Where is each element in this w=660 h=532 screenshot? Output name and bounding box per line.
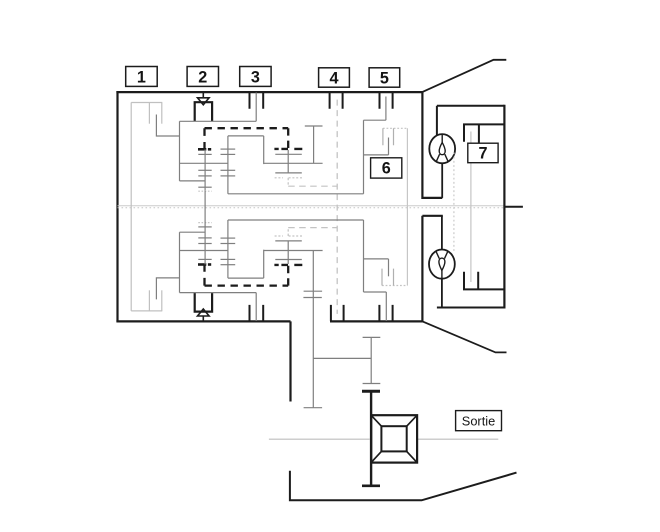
svg-text:Sortie: Sortie xyxy=(462,414,495,429)
svg-text:7: 7 xyxy=(478,145,487,163)
svg-text:1: 1 xyxy=(137,68,146,86)
svg-text:2: 2 xyxy=(198,68,207,86)
svg-text:3: 3 xyxy=(251,68,260,86)
svg-text:5: 5 xyxy=(380,69,389,87)
svg-text:6: 6 xyxy=(382,160,391,178)
svg-text:4: 4 xyxy=(329,69,338,87)
